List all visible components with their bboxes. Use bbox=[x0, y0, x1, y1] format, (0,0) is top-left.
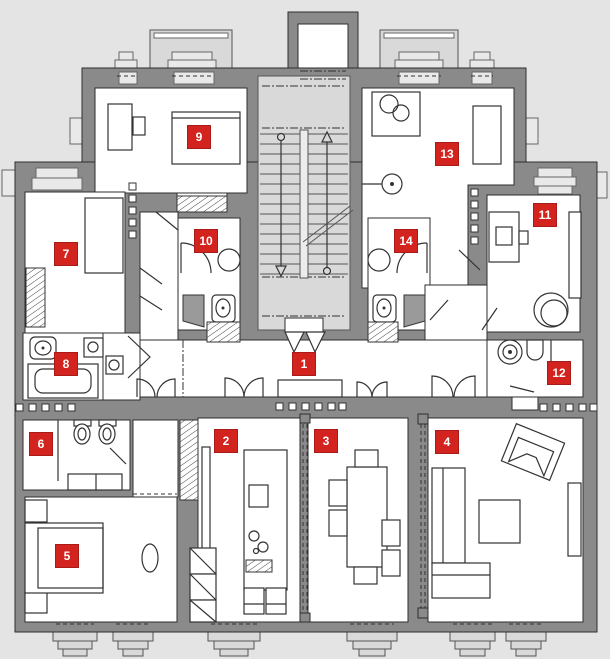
room-label-12: 12 bbox=[547, 361, 571, 385]
grille bbox=[207, 322, 240, 342]
floor-plan: 1 2 3 4 5 6 7 8 9 10 11 12 13 14 bbox=[0, 0, 610, 659]
room-label-2: 2 bbox=[214, 429, 238, 453]
toilet-icon bbox=[30, 337, 56, 359]
corridor-left bbox=[140, 212, 178, 340]
bench-icon bbox=[68, 474, 122, 490]
room-label-14: 14 bbox=[394, 229, 418, 253]
chair-icon bbox=[329, 510, 347, 536]
washer-icon bbox=[106, 356, 123, 374]
washer-icon bbox=[498, 340, 522, 364]
duct bbox=[404, 295, 425, 327]
wardrobe-icon bbox=[180, 420, 198, 500]
chair-icon bbox=[329, 480, 347, 506]
stool-icon bbox=[266, 588, 286, 614]
corridor-right bbox=[425, 285, 487, 340]
stool-icon bbox=[244, 588, 264, 614]
stair-stringer bbox=[300, 130, 308, 278]
chair-icon bbox=[355, 450, 378, 467]
grille bbox=[368, 322, 398, 342]
floor-plan-drawing bbox=[0, 0, 610, 659]
sink-icon bbox=[84, 338, 103, 357]
room-label-8: 8 bbox=[54, 352, 78, 376]
room-label-5: 5 bbox=[55, 544, 79, 568]
room-label-13: 13 bbox=[435, 142, 459, 166]
room-label-1: 1 bbox=[292, 352, 316, 376]
room-label-7: 7 bbox=[54, 242, 78, 266]
table-icon bbox=[372, 92, 420, 136]
bed-icon bbox=[85, 198, 123, 273]
cabinet-icon bbox=[473, 106, 501, 164]
wardrobe-icon bbox=[569, 212, 581, 298]
dining-table-icon bbox=[347, 467, 387, 567]
sink-icon bbox=[368, 249, 390, 271]
pouf-icon bbox=[142, 544, 158, 572]
entrance-canopy bbox=[278, 380, 342, 397]
room-label-3: 3 bbox=[314, 429, 338, 453]
wardrobe-icon bbox=[26, 268, 45, 327]
tv-cabinet bbox=[568, 483, 581, 556]
room-label-11: 11 bbox=[533, 203, 557, 227]
toilet-icon bbox=[212, 295, 235, 322]
dressing-area bbox=[133, 420, 178, 497]
toilet-icon bbox=[373, 295, 396, 322]
bidet-icon bbox=[99, 420, 116, 444]
room-label-4: 4 bbox=[435, 430, 459, 454]
chair-icon bbox=[382, 520, 400, 546]
duct bbox=[183, 295, 204, 327]
cabinets-icon bbox=[190, 548, 216, 622]
chair-icon bbox=[354, 567, 377, 584]
sink-icon bbox=[218, 249, 240, 271]
closet-icon bbox=[177, 196, 227, 212]
staircase bbox=[258, 71, 353, 352]
room-label-10: 10 bbox=[194, 229, 218, 253]
kitchen-island-icon bbox=[244, 450, 287, 590]
room-label-9: 9 bbox=[187, 125, 211, 149]
room-label-6: 6 bbox=[29, 432, 53, 456]
chair-icon bbox=[382, 550, 400, 576]
toilet-icon bbox=[527, 340, 543, 360]
toilet-icon bbox=[74, 420, 91, 444]
